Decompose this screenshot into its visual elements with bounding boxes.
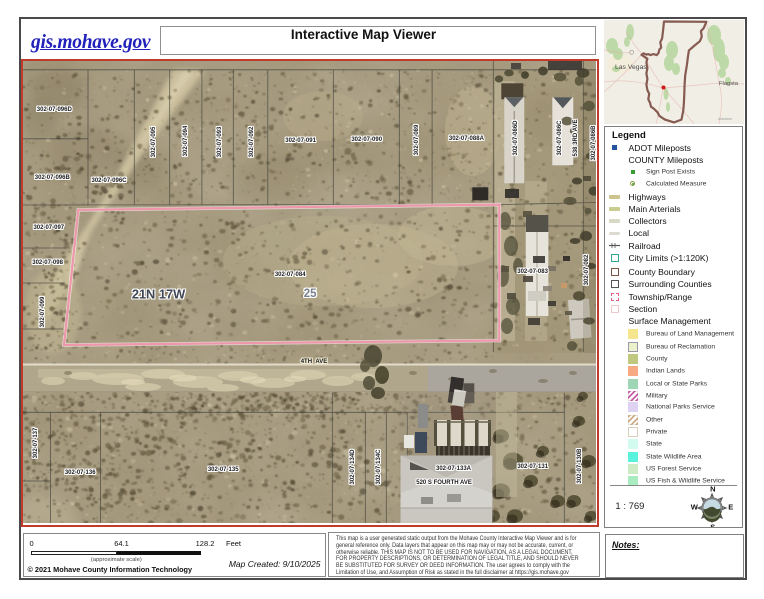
svg-text:Las Vegas: Las Vegas (615, 64, 647, 71)
svg-text:Flagsta: Flagsta (719, 81, 739, 87)
svg-text:Arizona: Arizona (717, 116, 732, 121)
